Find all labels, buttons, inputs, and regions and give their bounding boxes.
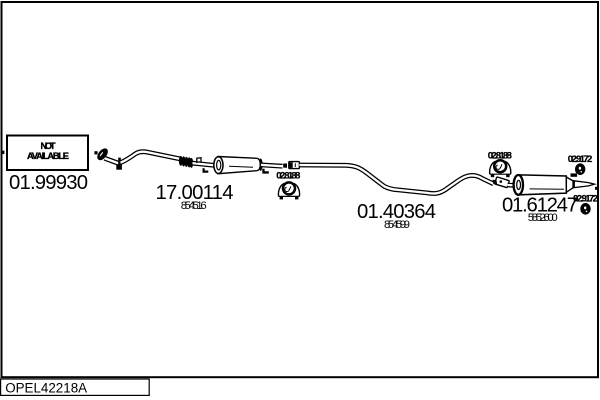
- svg-text:854599: 854599: [384, 219, 410, 231]
- svg-text:AVAILABLE: AVAILABLE: [27, 151, 69, 161]
- svg-text:OPEL42218A: OPEL42218A: [5, 380, 87, 395]
- svg-text:854516: 854516: [181, 200, 207, 212]
- svg-text:01.99930: 01.99930: [9, 172, 88, 194]
- svg-text:5852600: 5852600: [528, 212, 558, 224]
- svg-text:02.8188: 02.8188: [276, 170, 301, 181]
- svg-text:02.9172: 02.9172: [568, 154, 593, 165]
- svg-text:NOT: NOT: [41, 141, 56, 151]
